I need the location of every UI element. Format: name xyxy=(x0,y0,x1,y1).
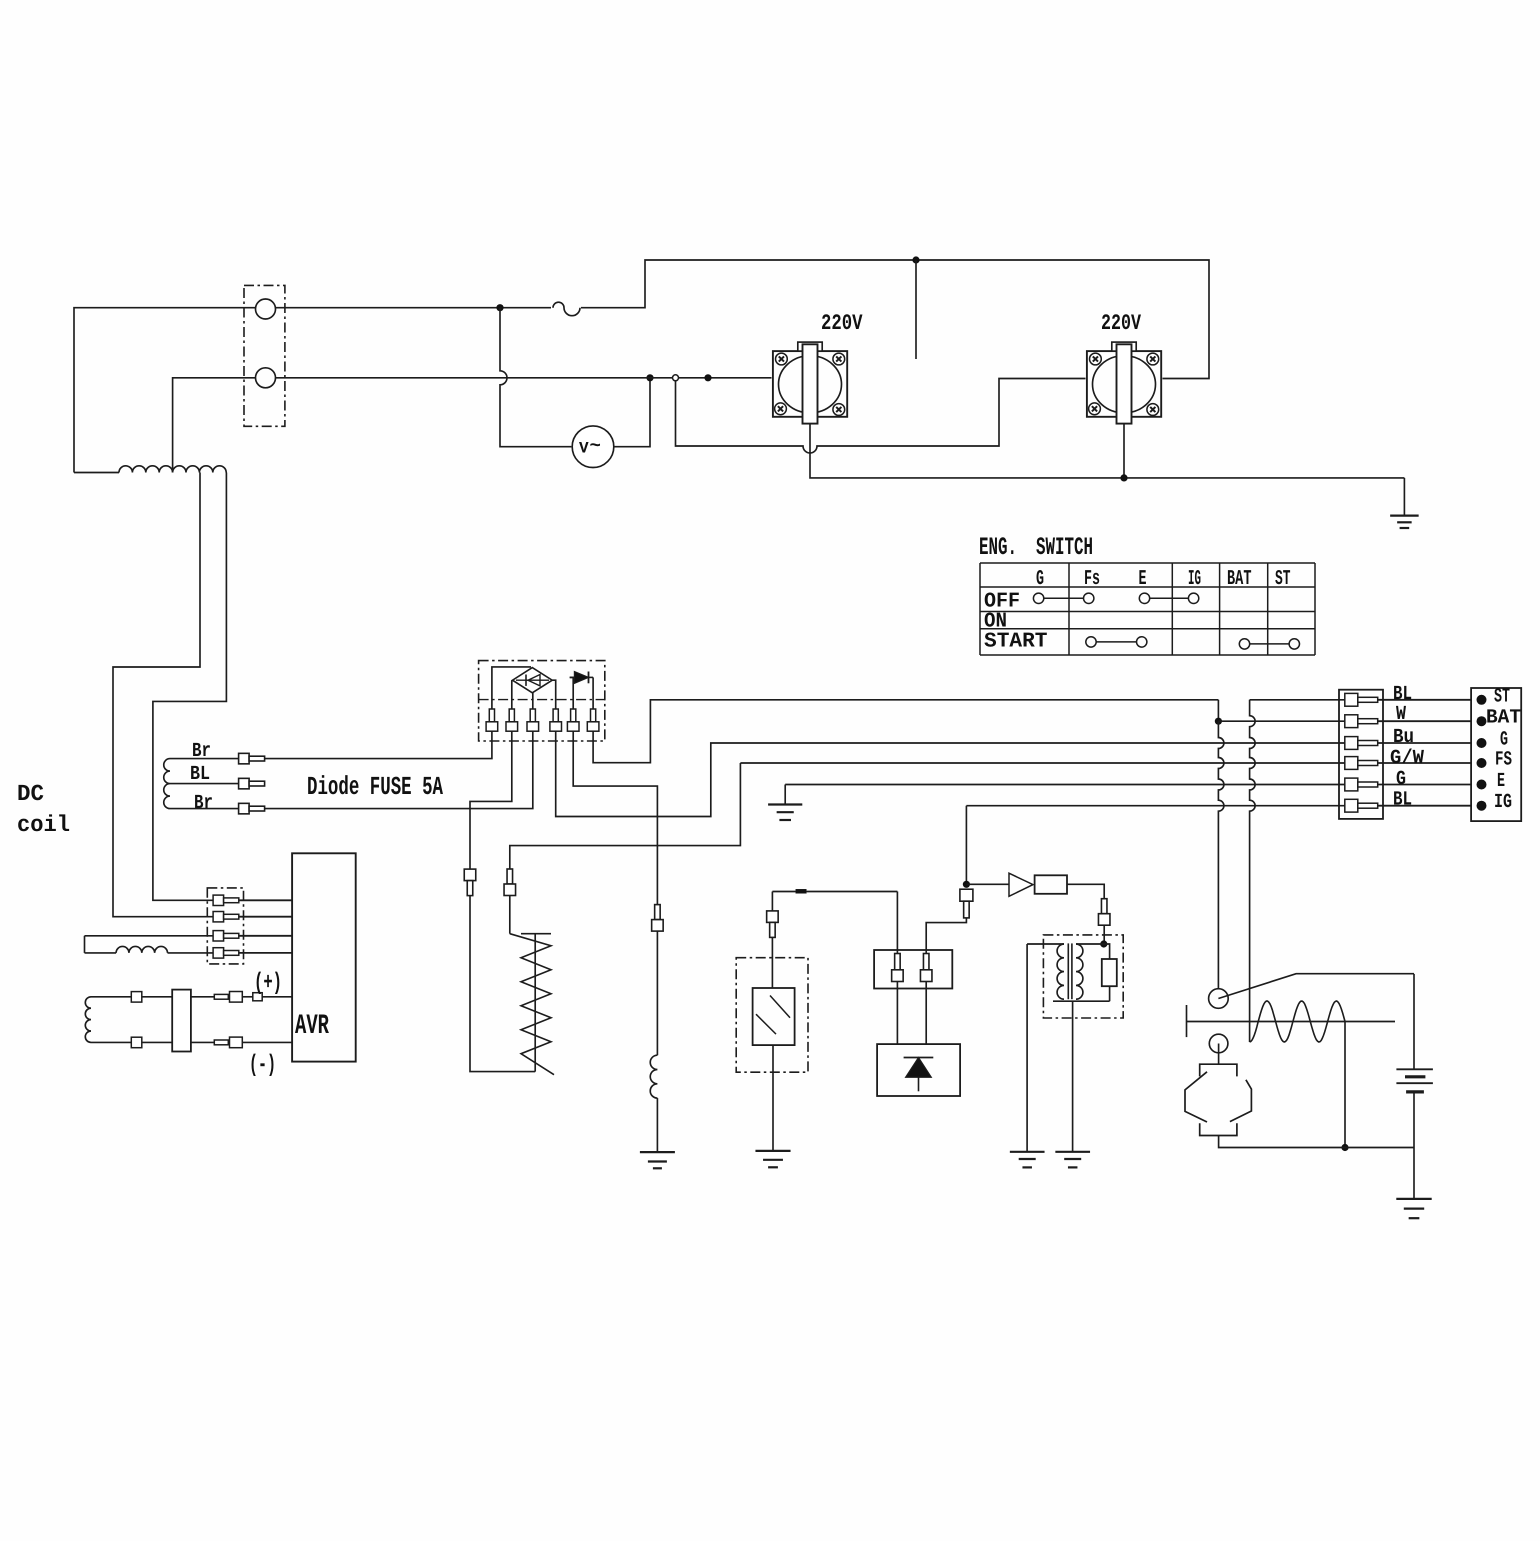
svg-text:coil: coil xyxy=(17,812,70,838)
svg-text:ST: ST xyxy=(1494,685,1510,708)
svg-text:DC: DC xyxy=(17,781,44,807)
svg-text:Br: Br xyxy=(194,792,213,815)
svg-text:220V: 220V xyxy=(1101,311,1142,336)
svg-text:E: E xyxy=(1139,568,1147,591)
svg-text:BAT: BAT xyxy=(1486,707,1521,730)
svg-text:~: ~ xyxy=(590,435,601,457)
svg-text:ST: ST xyxy=(1275,568,1291,591)
svg-text:Br: Br xyxy=(192,740,211,763)
svg-text:BL: BL xyxy=(1393,789,1412,812)
svg-text:(-): (-) xyxy=(249,1052,276,1079)
svg-text:IG: IG xyxy=(1494,791,1512,814)
svg-text:G/W: G/W xyxy=(1390,747,1424,770)
svg-text:V: V xyxy=(579,439,589,457)
svg-text:Bu: Bu xyxy=(1393,726,1414,749)
svg-text:Diode FUSE 5A: Diode FUSE 5A xyxy=(307,772,443,802)
svg-text:BL: BL xyxy=(190,763,210,786)
svg-text:ENG. SWITCH: ENG. SWITCH xyxy=(979,533,1093,562)
svg-text:G: G xyxy=(1036,568,1044,591)
svg-text:W: W xyxy=(1396,703,1406,726)
svg-text:START: START xyxy=(984,631,1048,654)
svg-text:Fs: Fs xyxy=(1084,568,1100,591)
svg-text:FS: FS xyxy=(1495,749,1512,772)
svg-text:(+): (+) xyxy=(254,970,282,997)
svg-text:E: E xyxy=(1497,770,1505,793)
svg-text:IG: IG xyxy=(1188,568,1201,591)
svg-text:220V: 220V xyxy=(821,311,863,336)
svg-text:BAT: BAT xyxy=(1227,568,1252,591)
svg-text:AVR: AVR xyxy=(295,1011,329,1042)
